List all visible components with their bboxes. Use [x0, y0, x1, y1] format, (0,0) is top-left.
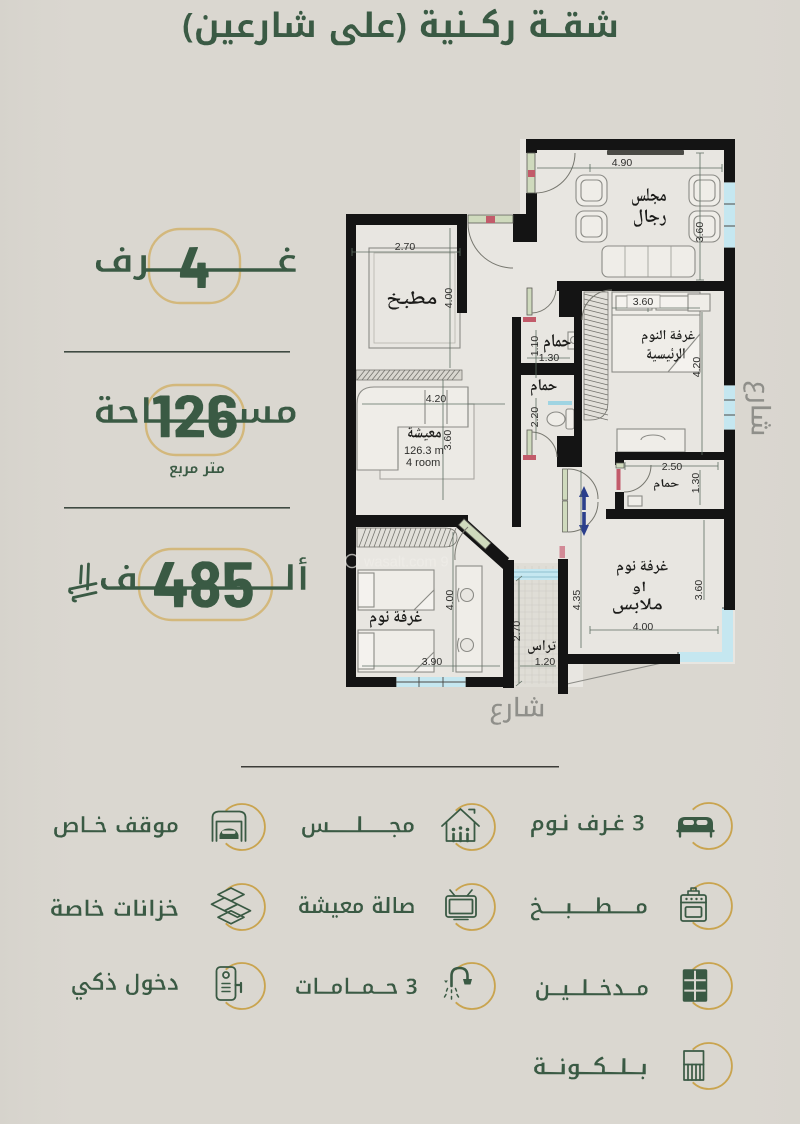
- svg-text:4 room: 4 room: [406, 457, 440, 469]
- svg-text:3.60: 3.60: [442, 430, 454, 451]
- svg-text:2.50: 2.50: [662, 461, 683, 473]
- svg-text:4.20: 4.20: [426, 393, 447, 405]
- svg-text:4.00: 4.00: [633, 621, 654, 633]
- svg-text:2.70: 2.70: [395, 241, 416, 253]
- svg-text:126.3 m: 126.3 m: [404, 445, 444, 457]
- svg-text:4.00: 4.00: [443, 288, 455, 309]
- svg-text:3.60: 3.60: [693, 580, 705, 601]
- svg-text:1.20: 1.20: [535, 656, 556, 668]
- svg-text:4.90: 4.90: [612, 157, 633, 169]
- svg-text:2.20: 2.20: [529, 407, 541, 428]
- svg-text:4.00: 4.00: [444, 590, 456, 611]
- svg-text:1.30: 1.30: [539, 352, 560, 364]
- svg-text:3.60: 3.60: [694, 222, 706, 243]
- svg-text:3.90: 3.90: [422, 656, 443, 668]
- svg-text:4.35: 4.35: [571, 590, 583, 611]
- svg-text:1.30: 1.30: [690, 473, 702, 494]
- svg-text:3.60: 3.60: [633, 296, 654, 308]
- svg-text:2.70: 2.70: [511, 621, 523, 642]
- svg-text:4.20: 4.20: [691, 357, 703, 378]
- svg-text:wasalt.com 9: wasalt.com 9: [363, 555, 449, 571]
